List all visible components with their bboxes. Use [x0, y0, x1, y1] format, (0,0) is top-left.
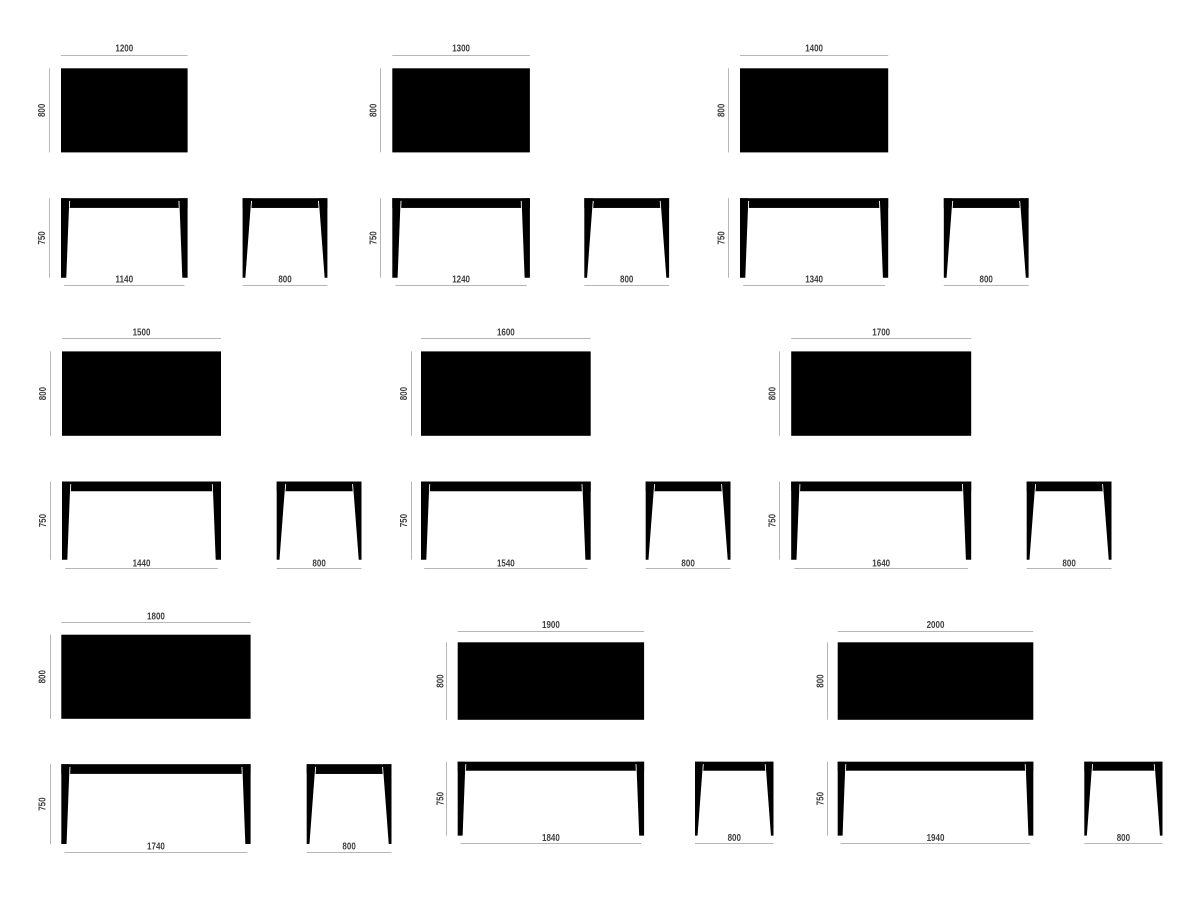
svg-text:1900: 1900	[542, 620, 560, 631]
svg-text:1740: 1740	[147, 841, 165, 852]
svg-text:800: 800	[37, 103, 48, 117]
svg-text:750: 750	[716, 231, 727, 245]
svg-text:800: 800	[980, 275, 994, 286]
svg-text:800: 800	[435, 674, 446, 688]
svg-text:1140: 1140	[115, 275, 133, 286]
svg-text:800: 800	[1117, 833, 1131, 844]
svg-text:2000: 2000	[927, 620, 945, 631]
svg-text:800: 800	[1062, 559, 1076, 570]
svg-text:1500: 1500	[133, 328, 151, 339]
svg-text:1440: 1440	[133, 559, 151, 570]
svg-text:800: 800	[312, 559, 326, 570]
svg-text:1600: 1600	[497, 328, 515, 339]
svg-text:750: 750	[767, 514, 778, 528]
svg-text:800: 800	[37, 670, 48, 684]
svg-text:750: 750	[369, 231, 380, 245]
svg-text:1940: 1940	[927, 833, 945, 844]
svg-text:1700: 1700	[872, 328, 890, 339]
svg-text:1200: 1200	[115, 44, 133, 55]
svg-text:750: 750	[435, 792, 446, 806]
svg-text:1800: 1800	[147, 612, 165, 623]
svg-text:800: 800	[399, 387, 410, 401]
svg-text:800: 800	[278, 275, 292, 286]
svg-text:800: 800	[716, 103, 727, 117]
svg-text:750: 750	[38, 514, 49, 528]
svg-text:1340: 1340	[805, 275, 823, 286]
svg-text:750: 750	[399, 514, 410, 528]
svg-text:750: 750	[815, 792, 826, 806]
svg-text:1540: 1540	[497, 559, 515, 570]
svg-text:750: 750	[37, 231, 48, 245]
svg-text:800: 800	[767, 387, 778, 401]
svg-text:800: 800	[728, 833, 742, 844]
svg-text:800: 800	[38, 387, 49, 401]
svg-text:1840: 1840	[542, 833, 560, 844]
svg-text:800: 800	[620, 275, 634, 286]
svg-text:800: 800	[681, 559, 695, 570]
svg-text:1400: 1400	[805, 44, 823, 55]
svg-text:1240: 1240	[452, 275, 470, 286]
svg-text:800: 800	[342, 841, 356, 852]
svg-text:1300: 1300	[452, 44, 470, 55]
svg-text:800: 800	[369, 103, 380, 117]
svg-text:1640: 1640	[872, 559, 890, 570]
svg-text:800: 800	[815, 674, 826, 688]
svg-text:750: 750	[37, 797, 48, 811]
